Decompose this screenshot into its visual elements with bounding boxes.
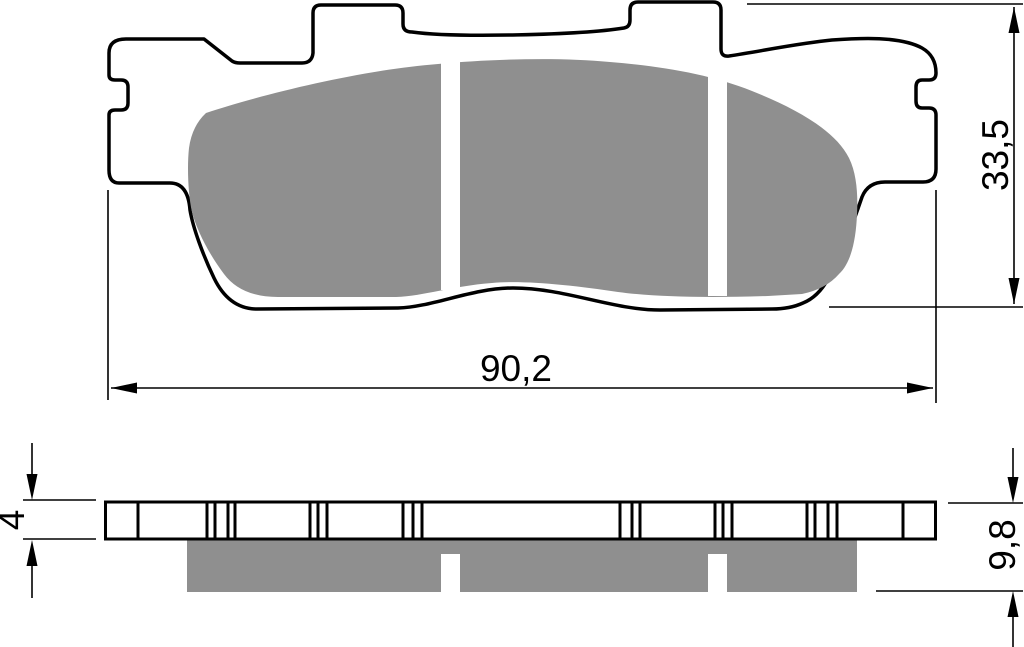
arrow-up-icon: [1008, 591, 1019, 617]
dimension-height-label: 33,5: [975, 119, 1016, 191]
front-view: [109, 2, 936, 310]
dimension-overall-thickness-label: 9,8: [982, 519, 1023, 570]
arrow-left-icon: [111, 383, 137, 394]
dimension-backing-thickness-label: 4: [0, 510, 32, 531]
friction-material-side: [187, 539, 857, 592]
arrow-down-icon: [27, 474, 38, 500]
friction-groove-right-side: [708, 554, 727, 592]
dimension-width-label: 90,2: [480, 348, 552, 389]
arrow-right-icon: [907, 383, 933, 394]
arrow-down-icon: [1009, 278, 1020, 304]
arrow-up-icon: [1009, 7, 1020, 33]
arrow-down-icon: [1008, 477, 1019, 503]
friction-groove-left-side: [441, 554, 460, 592]
dimension-backing-thickness: 4: [0, 443, 96, 598]
backing-plate-side: [106, 502, 936, 539]
arrow-up-icon: [27, 540, 38, 566]
side-view: [106, 502, 936, 592]
friction-groove-left-front: [441, 54, 460, 290]
drawing-canvas: 90,2 33,5 4 9,8: [0, 0, 1024, 647]
friction-material-front: [188, 59, 857, 297]
dimension-overall-thickness: 9,8: [876, 448, 1023, 647]
brake-pad-drawing: 90,2 33,5 4 9,8: [0, 0, 1024, 647]
friction-groove-right-front: [708, 68, 727, 296]
